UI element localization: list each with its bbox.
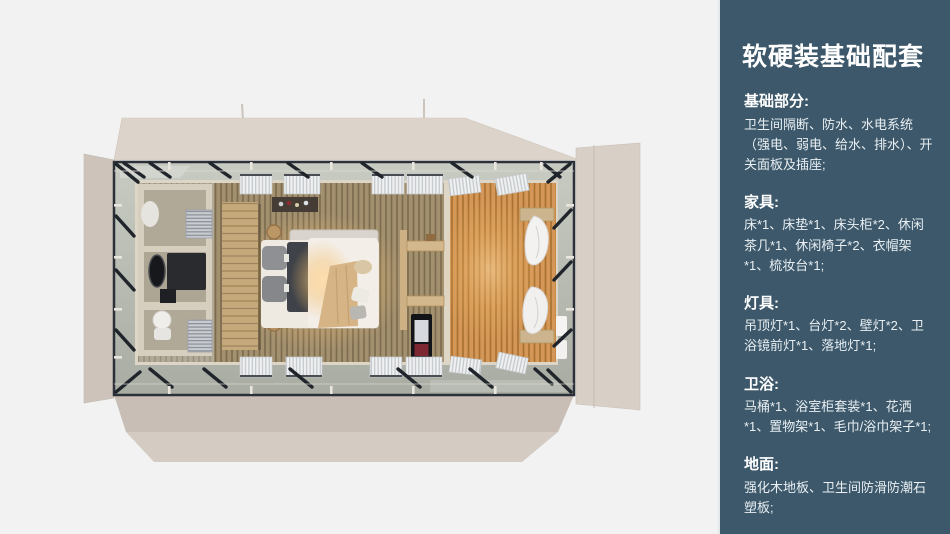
section-furniture: 家具: 床*1、床垫*1、床头柜*2、休闲茶几*1、休闲椅子*2、衣帽架*1、梳… — [744, 193, 934, 276]
pillow — [262, 246, 287, 270]
slide-canvas: 软硬装基础配套 基础部分: 卫生间隔断、防水、水电系统（强电、弱电、给水、排水）… — [0, 0, 950, 534]
bottom-skirt-inner — [114, 395, 574, 432]
section-body: 床*1、床垫*1、床头柜*2、休闲茶几*1、休闲椅子*2、衣帽架*1、梳妆台*1… — [744, 215, 934, 275]
section-heading: 地面: — [744, 455, 934, 475]
info-sidebar: 软硬装基础配套 基础部分: 卫生间隔断、防水、水电系统（强电、弱电、给水、排水）… — [718, 0, 950, 534]
bathroom-unit — [138, 184, 212, 356]
bed — [261, 230, 379, 328]
toilet-tank — [154, 328, 171, 340]
bottom-skirt-outer — [126, 432, 558, 462]
section-heading: 卫浴: — [744, 375, 934, 395]
pillow — [262, 276, 287, 302]
blind-panel — [407, 174, 443, 194]
section-flooring: 地面: 强化木地板、卫生间防滑防潮石塑板; — [744, 455, 934, 518]
roof-pin — [242, 104, 243, 120]
section-body: 吊顶灯*1、台灯*2、壁灯*2、卫浴镜前灯*1、落地灯*1; — [744, 316, 934, 356]
floorplan-render — [0, 0, 718, 534]
bottle — [279, 202, 284, 207]
blind-panel — [372, 174, 404, 194]
blind-panel — [448, 175, 481, 196]
shelf-board — [407, 296, 444, 306]
floor-drain-grate — [188, 320, 212, 352]
shelf-board — [407, 241, 444, 251]
section-body: 卫生间隔断、防水、水电系统（强电、弱电、给水、排水）、开关面板及插座; — [744, 115, 934, 175]
right-flap-panel — [576, 143, 640, 410]
toilet — [153, 311, 171, 329]
shower-tray — [141, 201, 159, 227]
blind-panel — [240, 357, 272, 377]
section-body: 强化木地板、卫生间防滑防潮石塑板; — [744, 478, 934, 518]
wall-shelf — [272, 197, 318, 212]
pillow-tab — [284, 284, 289, 292]
bottle — [304, 201, 309, 206]
throw-pillow — [349, 305, 367, 320]
section-heading: 基础部分: — [744, 92, 934, 112]
section-body: 马桶*1、浴室柜套装*1、花洒*1、置物架*1、毛巾/浴巾架子*1; — [744, 397, 934, 437]
cabinet-glass — [415, 320, 429, 342]
towel-radiator — [186, 210, 212, 238]
section-bathroom: 卫浴: 马桶*1、浴室柜套装*1、花洒*1、置物架*1、毛巾/浴巾架子*1; — [744, 375, 934, 438]
pampas-decor — [354, 260, 372, 274]
vanity-stool — [160, 289, 176, 303]
headboard-wood-wall — [222, 202, 258, 350]
vanity-mirror — [149, 255, 165, 287]
wall-shadow — [258, 204, 261, 350]
vanity-counter — [167, 253, 206, 290]
cabinet-contents — [415, 344, 429, 356]
left-flap-panel — [84, 154, 114, 403]
blind-panel — [284, 174, 320, 194]
shelf-wall — [400, 230, 407, 330]
headboard-partition — [222, 202, 261, 350]
rattan-basket — [267, 225, 281, 239]
bottle — [295, 203, 299, 207]
blind-panel — [286, 357, 322, 377]
sidebar-title: 软硬装基础配套 — [742, 42, 934, 72]
display-cabinet — [411, 314, 432, 362]
floorplan-panel — [0, 0, 718, 534]
section-lighting: 灯具: 吊顶灯*1、台灯*2、壁灯*2、卫浴镜前灯*1、落地灯*1; — [744, 294, 934, 357]
blind-panel — [370, 357, 402, 377]
section-basics: 基础部分: 卫生间隔断、防水、水电系统（强电、弱电、给水、排水）、开关面板及插座… — [744, 92, 934, 175]
section-heading: 灯具: — [744, 294, 934, 314]
blind-panel — [240, 174, 272, 194]
pillow-tab — [284, 254, 289, 262]
section-heading: 家具: — [744, 193, 934, 213]
shelf-item — [426, 234, 435, 241]
blind-panel — [406, 357, 442, 377]
bottle — [287, 201, 292, 206]
